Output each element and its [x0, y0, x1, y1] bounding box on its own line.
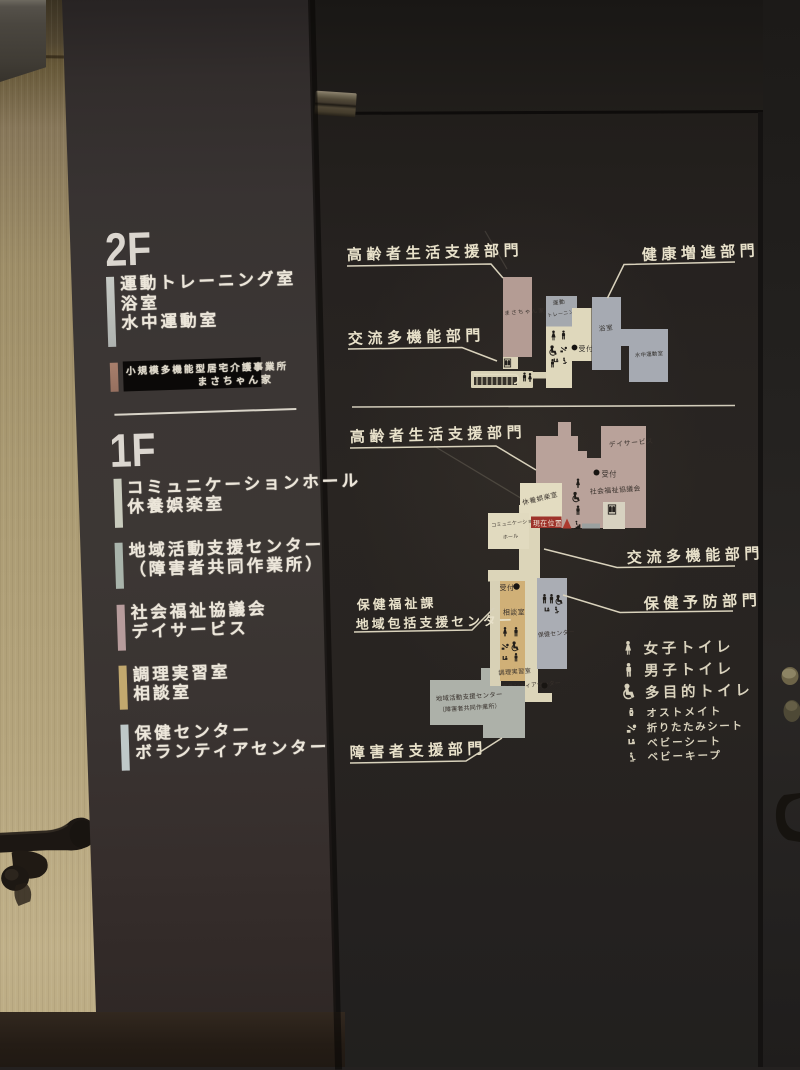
svg-text:高齢者生活支援部門: 高齢者生活支援部門	[347, 241, 524, 264]
svg-text:ベビーキープ: ベビーキープ	[647, 749, 722, 764]
svg-text:受付: 受付	[602, 470, 618, 479]
svg-text:保健福祉課: 保健福祉課	[356, 595, 437, 612]
svg-text:現在位置: 現在位置	[533, 519, 562, 528]
svg-text:ベビーシート: ベビーシート	[647, 735, 722, 750]
svg-text:交流多機能部門: 交流多機能部門	[348, 326, 486, 348]
svg-text:健康増進部門: 健康増進部門	[641, 241, 759, 264]
svg-text:女子トイレ: 女子トイレ	[643, 637, 734, 657]
svg-text:高齢者生活支援部門: 高齢者生活支援部門	[350, 423, 527, 446]
svg-text:受付: 受付	[500, 583, 515, 592]
svg-text:男子トイレ: 男子トイレ	[644, 660, 735, 679]
svg-text:オストメイト: オストメイト	[646, 706, 722, 720]
svg-text:多目的トイレ: 多目的トイレ	[645, 681, 754, 702]
svg-text:交流多機能部門: 交流多機能部門	[627, 544, 765, 567]
svg-text:障害者支援部門: 障害者支援部門	[350, 739, 488, 762]
svg-text:折りたたみシート: 折りたたみシート	[647, 719, 744, 735]
svg-text:保健予防部門: 保健予防部門	[643, 591, 762, 613]
svg-text:受付: 受付	[579, 344, 594, 353]
